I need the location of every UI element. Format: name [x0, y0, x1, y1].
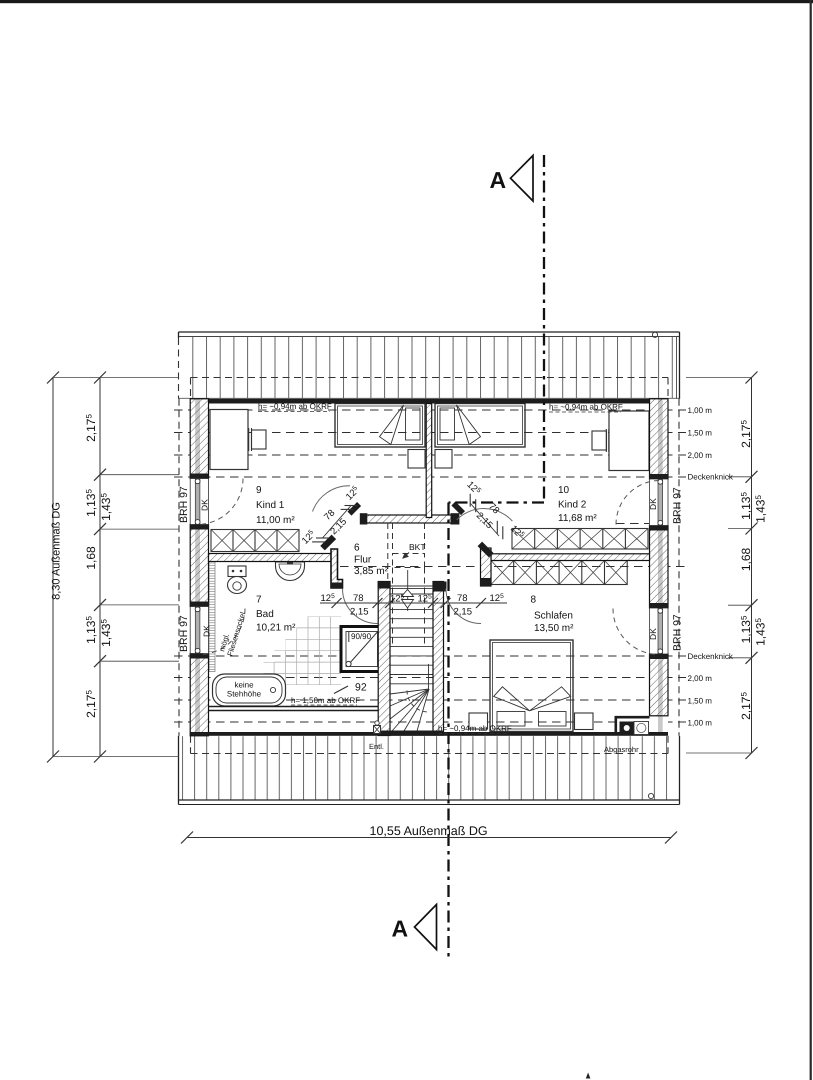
svg-text:1,00 m: 1,00 m — [688, 719, 713, 728]
svg-text:8,30 Außenmaß DG: 8,30 Außenmaß DG — [51, 502, 63, 600]
svg-text:Deckenknick: Deckenknick — [688, 652, 734, 661]
svg-text:78: 78 — [353, 593, 364, 604]
svg-text:BRH 97: BRH 97 — [672, 487, 684, 524]
svg-text:Abgasrohr: Abgasrohr — [604, 745, 639, 754]
svg-text:1,68: 1,68 — [84, 546, 98, 570]
svg-text:8: 8 — [531, 595, 537, 606]
svg-text:Kind 2: Kind 2 — [558, 500, 587, 511]
svg-text:1,50 m: 1,50 m — [688, 697, 713, 706]
svg-text:Bad: Bad — [256, 609, 274, 620]
svg-text:10: 10 — [558, 485, 570, 496]
svg-text:keine: keine — [234, 681, 254, 690]
svg-text:DK: DK — [648, 498, 658, 510]
svg-text:13,50 m²: 13,50 m² — [534, 623, 574, 634]
svg-text:10,21 m²: 10,21 m² — [256, 623, 296, 634]
svg-text:6: 6 — [354, 543, 360, 554]
svg-text:BRH 97: BRH 97 — [178, 615, 190, 652]
svg-text:90/90: 90/90 — [351, 632, 372, 641]
svg-text:2,15: 2,15 — [350, 607, 369, 618]
svg-text:11,68 m²: 11,68 m² — [558, 513, 597, 524]
svg-text:10,55 Außenmaß DG: 10,55 Außenmaß DG — [370, 824, 488, 838]
svg-text:DK: DK — [202, 625, 212, 637]
svg-text:Stehhöhe: Stehhöhe — [227, 690, 262, 699]
svg-text:1,50 m: 1,50 m — [688, 429, 713, 438]
svg-text:1,68: 1,68 — [739, 547, 753, 571]
svg-text:DK: DK — [648, 628, 658, 640]
svg-text:Schlafen: Schlafen — [534, 611, 573, 622]
svg-text:Kind 1: Kind 1 — [256, 500, 285, 511]
svg-text:78: 78 — [457, 593, 468, 604]
svg-text:11,00 m²: 11,00 m² — [256, 515, 295, 526]
svg-text:DK: DK — [200, 499, 210, 511]
svg-text:1,00 m: 1,00 m — [688, 406, 713, 415]
svg-text:2,15: 2,15 — [454, 607, 473, 618]
svg-text:Entl.: Entl. — [369, 742, 384, 751]
svg-text:9: 9 — [256, 485, 262, 496]
svg-text:7: 7 — [256, 595, 262, 606]
svg-text:h= ~0,94m ab OKRF: h= ~0,94m ab OKRF — [549, 403, 623, 412]
svg-text:Deckenknick: Deckenknick — [688, 473, 734, 482]
svg-text:h= ~0,94m ab OKRF: h= ~0,94m ab OKRF — [438, 724, 512, 733]
svg-text:h= 1,50m ab OKRF: h= 1,50m ab OKRF — [291, 696, 360, 705]
svg-text:92: 92 — [355, 682, 367, 694]
svg-text:BRH 97: BRH 97 — [672, 614, 684, 651]
svg-text:2,00 m: 2,00 m — [688, 674, 713, 683]
svg-text:A: A — [490, 167, 507, 193]
svg-text:BRH 97: BRH 97 — [178, 486, 190, 523]
svg-text:BKT: BKT — [409, 542, 426, 552]
svg-text:h= ~0,94m ab OKRF: h= ~0,94m ab OKRF — [258, 402, 332, 411]
svg-text:A: A — [392, 916, 409, 942]
svg-text:2,00 m: 2,00 m — [688, 451, 713, 460]
svg-text:Flur: Flur — [354, 555, 372, 566]
svg-text:3,85 m²: 3,85 m² — [354, 566, 389, 577]
